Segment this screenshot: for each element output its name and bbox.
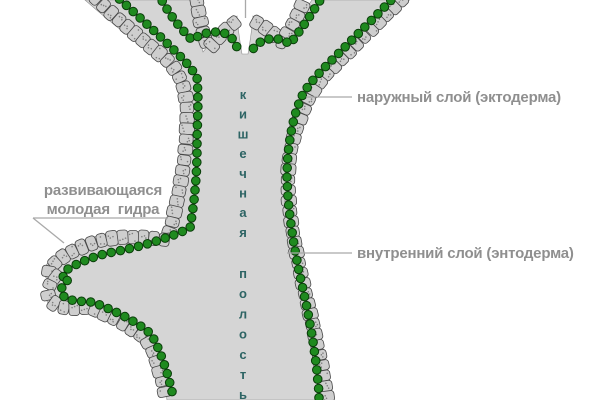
gut-cavity-letter: е xyxy=(239,146,246,161)
label-bud-line1: развивающаяся xyxy=(44,182,162,199)
gut-cavity-letter: н xyxy=(239,186,247,201)
label-ectoderm: наружный слой (эктодерма) xyxy=(357,89,561,106)
label-bud-line2: молодая гидра xyxy=(47,201,160,218)
gut-cavity-letter: т xyxy=(240,367,246,382)
gut-cavity-letter: а xyxy=(239,205,247,220)
label-endoderm: внутренний слой (энтодерма) xyxy=(357,245,574,262)
gut-cavity-letter: л xyxy=(239,306,247,321)
hydra-body xyxy=(43,0,410,400)
gut-cavity-letter: к xyxy=(240,87,247,102)
hydra-diagram: наружный слой (эктодерма) внутренний сло… xyxy=(0,0,600,400)
gut-cavity-letter: о xyxy=(239,286,247,301)
gut-cavity-letter: с xyxy=(239,347,246,362)
gut-cavity-letter: ш xyxy=(238,126,249,141)
gut-cavity-letter: я xyxy=(239,225,247,240)
leader-line-bud xyxy=(33,218,64,243)
gut-cavity-letter: и xyxy=(239,107,247,122)
hydra-diagram-canvas: наружный слой (эктодерма) внутренний сло… xyxy=(0,0,600,400)
gut-cavity-letter: ч xyxy=(239,166,247,181)
gut-cavity-letter: п xyxy=(239,266,247,281)
gut-cavity-letter: ь xyxy=(239,387,247,400)
gut-cavity-letter: о xyxy=(239,327,247,342)
